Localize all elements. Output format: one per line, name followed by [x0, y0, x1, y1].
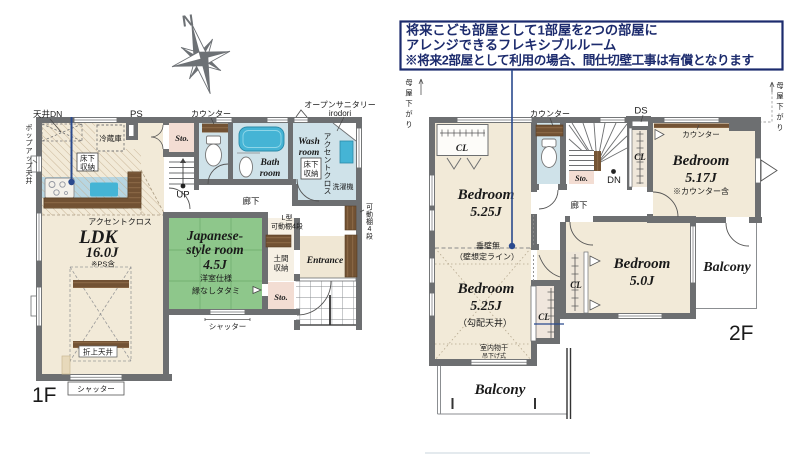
- svg-text:UP: UP: [176, 190, 189, 201]
- svg-text:N: N: [181, 12, 195, 30]
- svg-text:CL: CL: [538, 312, 550, 322]
- svg-text:収納: 収納: [274, 263, 289, 273]
- svg-text:CL: CL: [570, 280, 582, 290]
- svg-text:ス: ス: [324, 187, 332, 196]
- svg-text:プ: プ: [26, 162, 33, 170]
- svg-text:冷蔵庫: 冷蔵庫: [99, 133, 122, 143]
- svg-text:ポ: ポ: [26, 124, 33, 132]
- svg-text:動: 動: [366, 209, 373, 218]
- svg-text:収納: 収納: [304, 168, 319, 178]
- svg-text:が: が: [405, 110, 412, 119]
- svg-text:Bedroom: Bedroom: [672, 153, 730, 169]
- svg-text:5.17J: 5.17J: [685, 171, 718, 186]
- svg-text:アクセントクロス: アクセントクロス: [88, 218, 152, 227]
- svg-text:DN: DN: [607, 175, 621, 186]
- svg-text:シャッター: シャッター: [209, 322, 247, 331]
- svg-text:Sto.: Sto.: [175, 133, 188, 143]
- svg-text:Bedroom: Bedroom: [457, 281, 515, 297]
- svg-text:可動棚4段: 可動棚4段: [271, 222, 303, 231]
- svg-text:5.25J: 5.25J: [470, 205, 503, 220]
- svg-text:※PS含: ※PS含: [91, 259, 115, 269]
- svg-text:プ: プ: [26, 139, 33, 147]
- svg-text:アレンジできるフレキシブルルーム: アレンジできるフレキシブルルーム: [406, 37, 616, 53]
- svg-text:2F: 2F: [729, 322, 754, 345]
- svg-text:土間: 土間: [274, 253, 289, 263]
- svg-text:irodori: irodori: [329, 109, 351, 118]
- svg-text:CL: CL: [634, 152, 646, 162]
- svg-text:母: 母: [776, 81, 783, 90]
- svg-text:段: 段: [366, 232, 373, 241]
- svg-text:※将来2部屋として利用の場合、間仕切壁工事は有償となります: ※将来2部屋として利用の場合、間仕切壁工事は有償となります: [405, 53, 754, 68]
- svg-text:ア: ア: [26, 147, 33, 155]
- svg-text:Balcony: Balcony: [702, 260, 751, 275]
- svg-text:4.5J: 4.5J: [202, 257, 228, 272]
- svg-text:カウンター: カウンター: [191, 110, 231, 119]
- svg-text:将来こども部屋として1部屋を2つの部屋に: 将来こども部屋として1部屋を2つの部屋に: [406, 22, 658, 38]
- svg-text:折上天井: 折上天井: [83, 347, 113, 357]
- svg-text:CL: CL: [456, 144, 468, 154]
- svg-text:シャッター: シャッター: [77, 385, 115, 394]
- svg-text:5.25J: 5.25J: [470, 299, 503, 314]
- svg-text:Bedroom: Bedroom: [613, 256, 671, 272]
- svg-text:Japanese-: Japanese-: [186, 228, 244, 243]
- svg-text:母: 母: [405, 78, 412, 87]
- svg-text:Sto.: Sto.: [274, 292, 287, 302]
- svg-text:り: り: [405, 120, 412, 129]
- svg-text:Sto.: Sto.: [575, 174, 588, 183]
- svg-text:洗濯機: 洗濯機: [333, 182, 354, 191]
- svg-text:PS: PS: [130, 109, 143, 120]
- svg-text:room: room: [260, 169, 281, 179]
- svg-text:廊下: 廊下: [570, 200, 588, 210]
- svg-text:（勾配天井）: （勾配天井）: [458, 317, 512, 328]
- svg-text:DS: DS: [634, 106, 647, 117]
- svg-text:下: 下: [405, 99, 412, 108]
- svg-text:1F: 1F: [32, 384, 57, 407]
- svg-text:ッ: ッ: [26, 155, 33, 162]
- svg-text:棚: 棚: [366, 217, 373, 226]
- svg-text:洋室仕様: 洋室仕様: [200, 273, 232, 283]
- svg-text:下: 下: [776, 102, 783, 111]
- svg-text:※カウンター含: ※カウンター含: [673, 186, 729, 196]
- svg-text:Bedroom: Bedroom: [457, 187, 515, 203]
- svg-text:style room: style room: [185, 242, 243, 257]
- svg-text:収納: 収納: [80, 162, 95, 172]
- svg-text:が: が: [776, 113, 783, 122]
- svg-text:4: 4: [368, 226, 372, 233]
- svg-text:縁なしタタミ: 縁なしタタミ: [192, 286, 240, 296]
- svg-text:Wash: Wash: [298, 137, 319, 147]
- svg-text:吊下げ式: 吊下げ式: [482, 352, 506, 360]
- svg-text:カウンター: カウンター: [530, 110, 570, 119]
- svg-text:Bath: Bath: [259, 158, 279, 168]
- svg-text:5.0J: 5.0J: [630, 274, 656, 289]
- svg-text:井: 井: [26, 176, 33, 185]
- svg-text:Entrance: Entrance: [306, 256, 344, 266]
- svg-text:（壁想定ライン）: （壁想定ライン）: [455, 252, 519, 262]
- svg-text:廊下: 廊下: [242, 196, 260, 206]
- svg-text:り: り: [776, 123, 783, 132]
- svg-text:床下: 床下: [80, 153, 95, 163]
- svg-text:屋: 屋: [776, 92, 783, 101]
- svg-text:屋: 屋: [405, 89, 412, 98]
- svg-text:室内物干: 室内物干: [480, 343, 508, 352]
- svg-text:カウンター: カウンター: [682, 130, 720, 139]
- svg-text:L型: L型: [282, 213, 293, 222]
- svg-text:Balcony: Balcony: [474, 382, 526, 398]
- svg-text:ッ: ッ: [26, 133, 33, 140]
- svg-text:床下: 床下: [304, 159, 319, 169]
- svg-text:可: 可: [366, 203, 373, 211]
- svg-text:天井DN: 天井DN: [33, 109, 62, 119]
- svg-text:room: room: [299, 148, 320, 158]
- svg-text:垂壁無: 垂壁無: [476, 241, 500, 251]
- svg-text:天: 天: [26, 170, 33, 178]
